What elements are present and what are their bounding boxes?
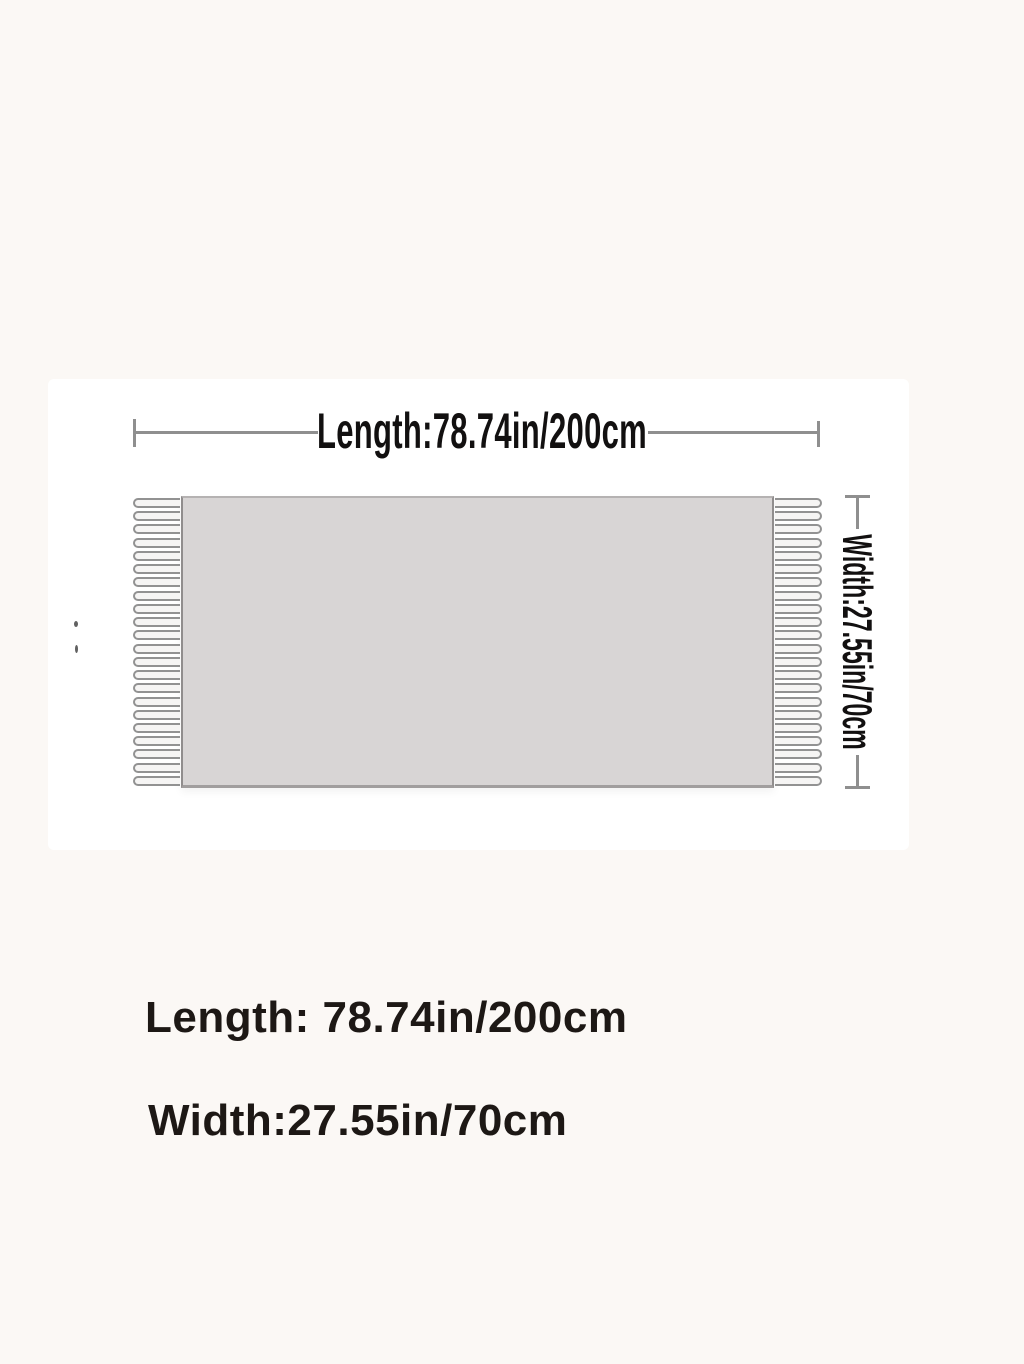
product-dimension-image: Length:78.74in/200cm Width:27.55in/70cm … bbox=[0, 0, 1024, 1364]
fringe-tassel bbox=[775, 710, 822, 720]
stray-mark bbox=[75, 645, 78, 653]
fringe-tassel bbox=[775, 657, 822, 667]
fringe-tassel bbox=[133, 498, 180, 508]
scarf-fringe-left bbox=[133, 498, 180, 786]
fringe-tassel bbox=[133, 604, 180, 614]
fringe-tassel bbox=[775, 538, 822, 548]
width-dimension-line-bottom bbox=[856, 755, 859, 786]
fringe-tassel bbox=[775, 776, 822, 786]
fringe-tassel bbox=[133, 564, 180, 574]
fringe-tassel bbox=[133, 763, 180, 773]
fringe-tassel bbox=[775, 683, 822, 693]
width-dimension-label: Width:27.55in/70cm bbox=[833, 534, 881, 749]
fringe-tassel bbox=[133, 657, 180, 667]
fringe-tassel bbox=[775, 749, 822, 759]
fringe-tassel bbox=[775, 551, 822, 561]
length-dimension-line-left bbox=[136, 431, 318, 434]
fringe-tassel bbox=[775, 736, 822, 746]
fringe-tassel bbox=[775, 604, 822, 614]
spec-width-text: Width:27.55in/70cm bbox=[148, 1096, 567, 1146]
fringe-tassel bbox=[133, 776, 180, 786]
scarf-body bbox=[181, 496, 774, 788]
width-dimension-line-top bbox=[856, 498, 859, 529]
fringe-tassel bbox=[133, 617, 180, 627]
width-dimension-bottom-cap bbox=[845, 786, 870, 789]
fringe-tassel bbox=[133, 524, 180, 534]
fringe-tassel bbox=[133, 670, 180, 680]
fringe-tassel bbox=[775, 577, 822, 587]
fringe-tassel bbox=[775, 524, 822, 534]
fringe-tassel bbox=[133, 630, 180, 640]
fringe-tassel bbox=[133, 683, 180, 693]
fringe-tassel bbox=[775, 617, 822, 627]
fringe-tassel bbox=[775, 511, 822, 521]
fringe-tassel bbox=[775, 723, 822, 733]
length-dimension-line-right bbox=[648, 431, 818, 434]
fringe-tassel bbox=[133, 644, 180, 654]
fringe-tassel bbox=[133, 538, 180, 548]
fringe-tassel bbox=[775, 564, 822, 574]
fringe-tassel bbox=[133, 591, 180, 601]
fringe-tassel bbox=[775, 763, 822, 773]
fringe-tassel bbox=[133, 710, 180, 720]
fringe-tassel bbox=[133, 551, 180, 561]
fringe-tassel bbox=[775, 670, 822, 680]
fringe-tassel bbox=[775, 644, 822, 654]
fringe-tassel bbox=[133, 749, 180, 759]
fringe-tassel bbox=[133, 723, 180, 733]
fringe-tassel bbox=[775, 697, 822, 707]
fringe-tassel bbox=[775, 630, 822, 640]
fringe-tassel bbox=[133, 577, 180, 587]
fringe-tassel bbox=[775, 498, 822, 508]
length-dimension-right-cap bbox=[817, 421, 820, 447]
fringe-tassel bbox=[133, 511, 180, 521]
fringe-tassel bbox=[133, 736, 180, 746]
length-dimension-label: Length:78.74in/200cm bbox=[317, 402, 647, 460]
scarf-fringe-right bbox=[775, 498, 822, 786]
fringe-tassel bbox=[133, 697, 180, 707]
spec-length-text: Length: 78.74in/200cm bbox=[145, 993, 627, 1043]
stray-mark bbox=[74, 621, 78, 627]
fringe-tassel bbox=[775, 591, 822, 601]
